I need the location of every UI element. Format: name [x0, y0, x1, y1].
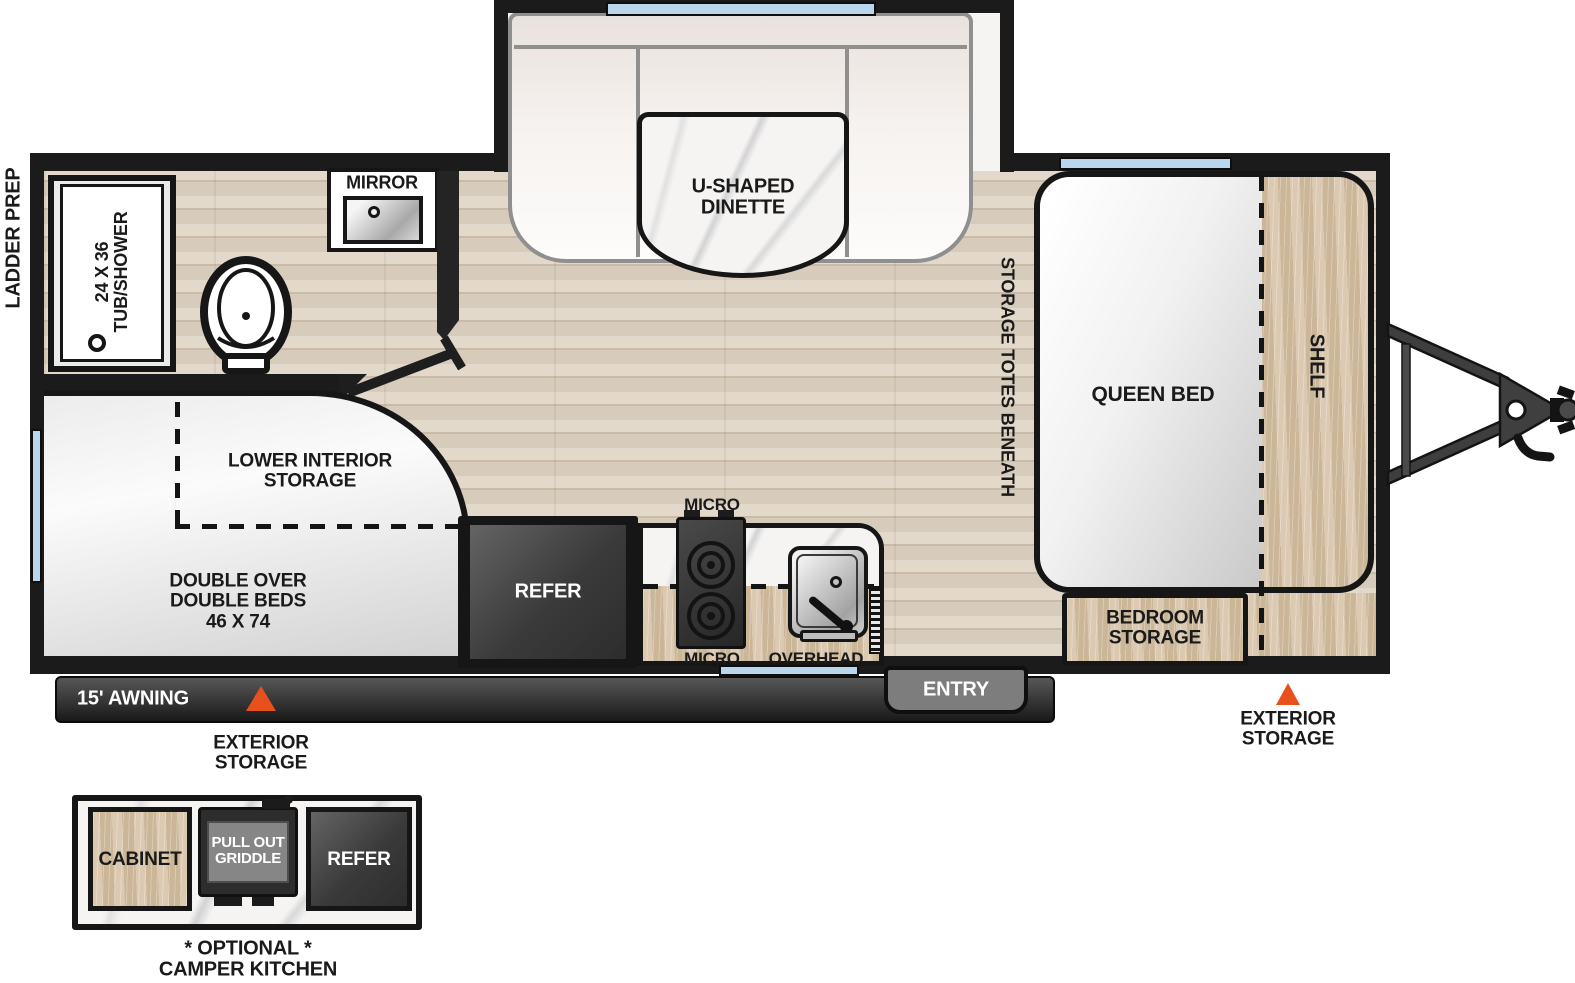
burner-1-dot	[707, 561, 715, 569]
exterior-storage-right-triangle	[1276, 683, 1300, 705]
griddle-knob	[284, 795, 293, 804]
exterior-storage-right-label: EXTERIOR STORAGE	[1240, 710, 1336, 751]
bedroom-storage-label: BEDROOM STORAGE	[1106, 609, 1204, 650]
dinette-seat-back-line	[514, 45, 967, 49]
tub-label: 24 X 36 TUB/SHOWER	[93, 212, 132, 333]
dinette-window	[606, 2, 876, 16]
ladder-prep-label: LADDER PREP	[3, 167, 24, 308]
lower-storage-dash-vertical	[175, 402, 180, 526]
wall-left	[30, 153, 44, 674]
camper-kitchen-refer-label: REFER	[327, 850, 390, 870]
shelf-base	[1248, 593, 1376, 656]
griddle-foot-left	[214, 897, 242, 906]
burner-2-dot	[707, 612, 715, 620]
lower-interior-storage-label: LOWER INTERIOR STORAGE	[228, 452, 392, 493]
refer-label: REFER	[515, 581, 582, 602]
exterior-storage-left-label: EXTERIOR STORAGE	[213, 734, 309, 775]
counter-end-vent	[869, 586, 882, 654]
tub-drain	[88, 334, 106, 352]
micro-bottom-label: MICRO	[684, 650, 740, 668]
faucet-base	[800, 630, 858, 642]
dinette-label: U-SHAPED DINETTE	[692, 177, 795, 220]
micro-top-label: MICRO	[684, 496, 740, 514]
bedroom-window	[1059, 157, 1232, 170]
trailer-hitch	[1380, 318, 1575, 502]
bathroom-door	[320, 160, 500, 410]
camper-kitchen-caption: * OPTIONAL * CAMPER KITCHEN	[159, 939, 337, 982]
dinette-slide-wall-left	[494, 0, 508, 172]
overhead-label: OVERHEAD	[769, 650, 864, 668]
entry-label: ENTRY	[923, 679, 989, 700]
floor-plan: U-SHAPED DINETTE 24 X 36 TUB/SHOWER MIRR…	[0, 0, 1575, 983]
double-beds-label: DOUBLE OVER DOUBLE BEDS 46 X 74	[169, 572, 306, 633]
shelf-dash	[1259, 176, 1264, 654]
dinette-slide-wall-right	[1000, 0, 1014, 172]
queen-bed-label: QUEEN BED	[1091, 384, 1214, 406]
griddle-label: PULL OUT GRIDDLE	[211, 835, 284, 867]
storage-totes-label: STORAGE TOTES BENEATH	[997, 257, 1016, 497]
bunk-side-window	[31, 429, 42, 583]
awning-marker-triangle	[246, 686, 276, 711]
toilet	[198, 256, 294, 376]
griddle-foot-right	[252, 897, 274, 906]
camper-kitchen-cabinet-label: CABINET	[98, 850, 181, 870]
shelf-label: SHELF	[1305, 334, 1326, 399]
lower-storage-dash-horizontal	[175, 524, 463, 529]
kitchen-sink-drain	[830, 576, 842, 588]
awning-label: 15' AWNING	[77, 688, 189, 709]
